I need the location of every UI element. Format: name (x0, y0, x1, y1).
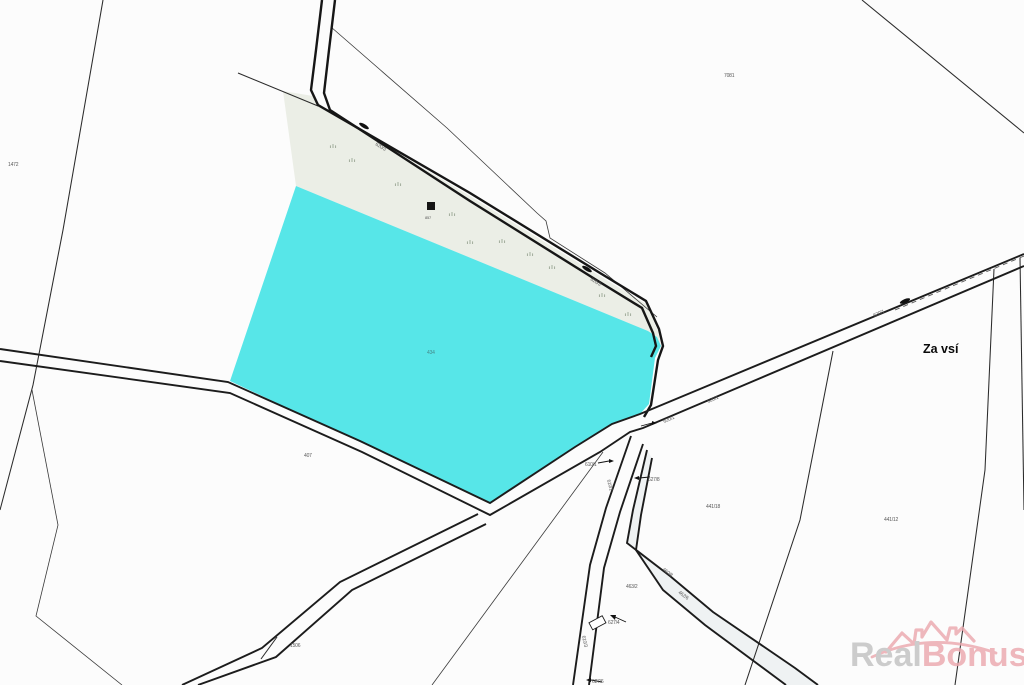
area-name-label: Za vsí (923, 342, 959, 356)
parcel-number-label: 441/12 (884, 517, 899, 523)
parcel-number-label: 627/4 (608, 620, 620, 626)
parcel-number-label: 407 (304, 453, 312, 459)
watermark-text: RealBonus.cz (850, 636, 1024, 674)
parcel-number-label: 857 (425, 215, 432, 220)
cadastral-map-screenshot: 14727081857434407620/3620/3620/1620/1620… (0, 0, 1024, 685)
building-square (427, 202, 435, 210)
parcel-number-label: 1506 (290, 643, 301, 649)
parcel-number-label: 7081 (724, 73, 735, 79)
parcel-number-label: 610/1 (585, 462, 597, 468)
parcel-number-label: 627/8 (648, 477, 660, 483)
parcel-number-label: 627/6 (592, 679, 604, 685)
parcel-number-label: 463/2 (626, 584, 638, 590)
parcel-number-label: 434 (427, 350, 435, 356)
watermark-part2: Bonus (922, 636, 1024, 674)
parcel-number-label: 1472 (8, 162, 19, 168)
watermark-part1: Real (850, 636, 922, 674)
parcel-number-label: 441/18 (706, 504, 721, 510)
map-canvas: 14727081857434407620/3620/3620/1620/1620… (0, 0, 1024, 685)
